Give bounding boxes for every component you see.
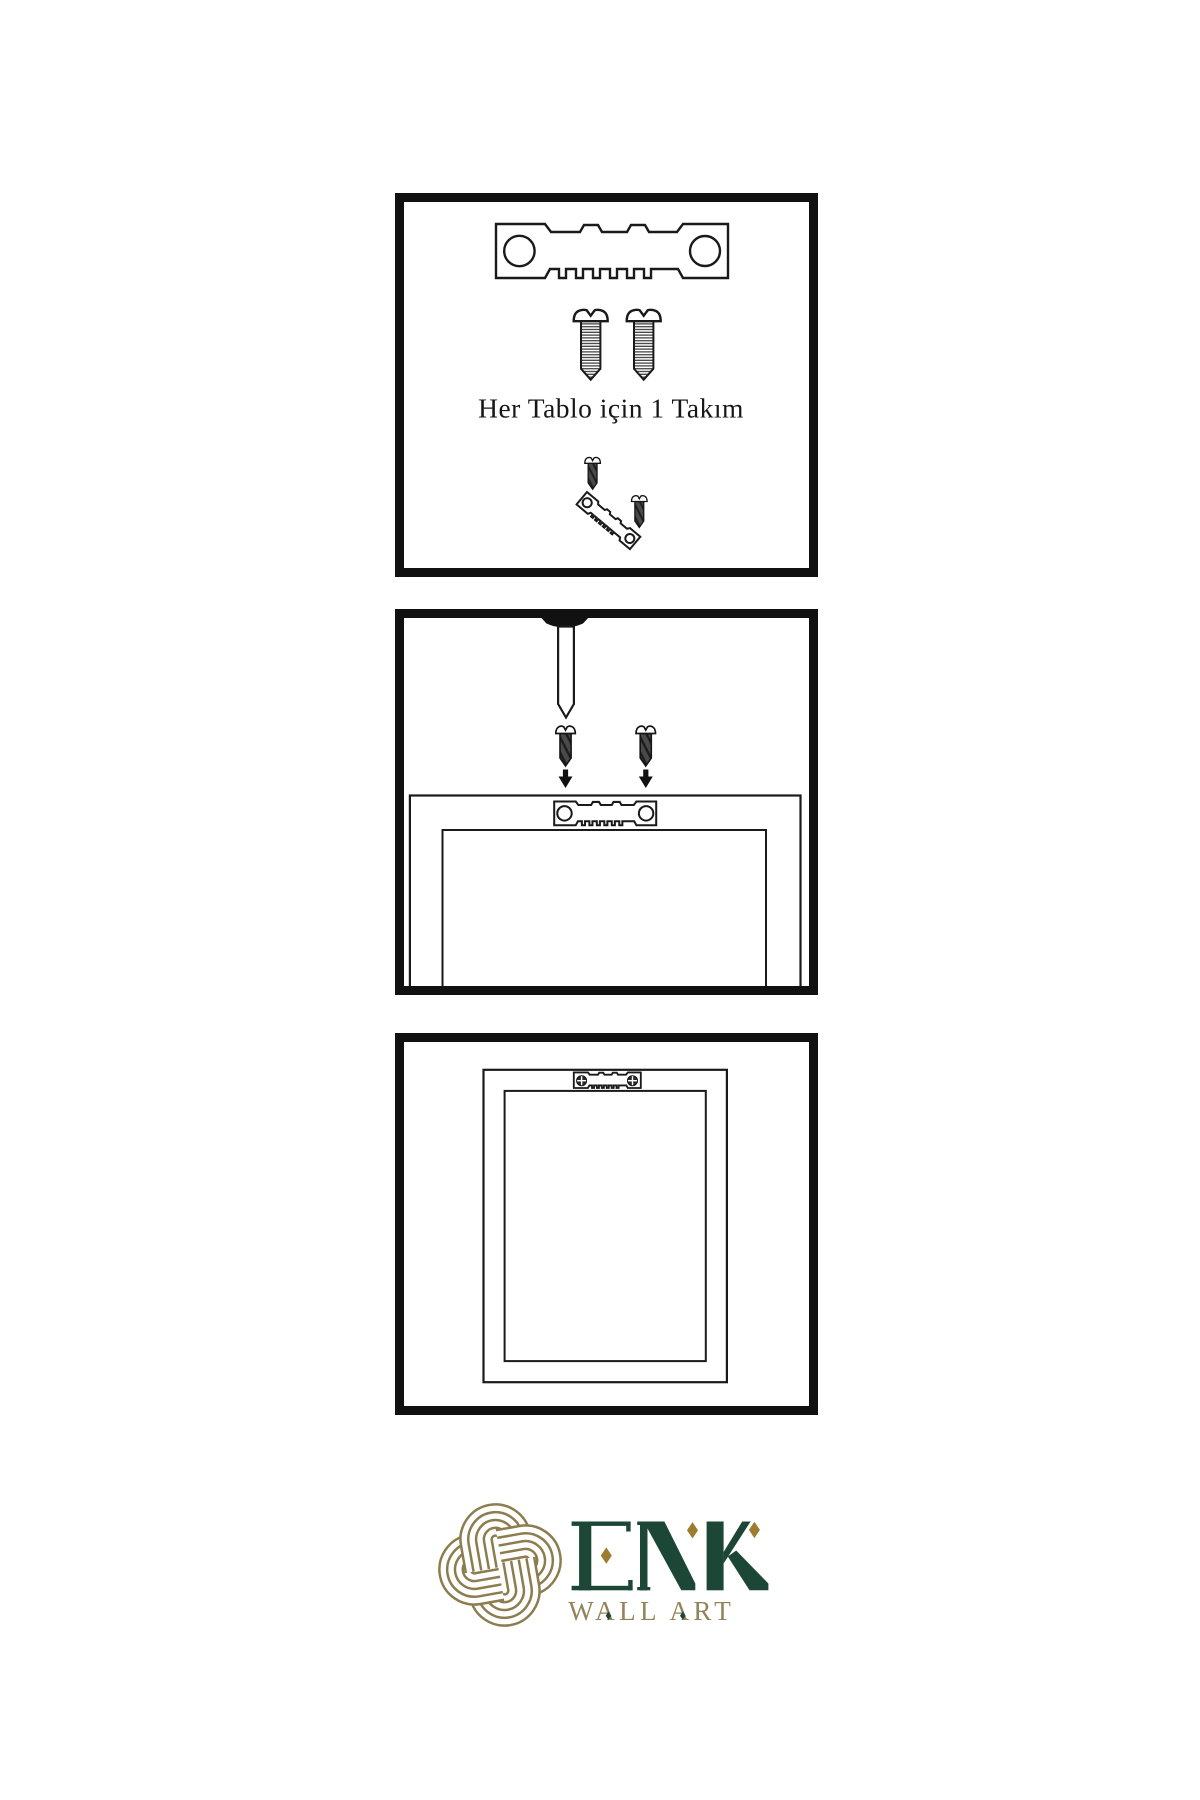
svg-text:Her Tablo için 1 Takım: Her Tablo için 1 Takım xyxy=(478,393,744,424)
svg-text:WALL ART: WALL ART xyxy=(568,1596,735,1626)
